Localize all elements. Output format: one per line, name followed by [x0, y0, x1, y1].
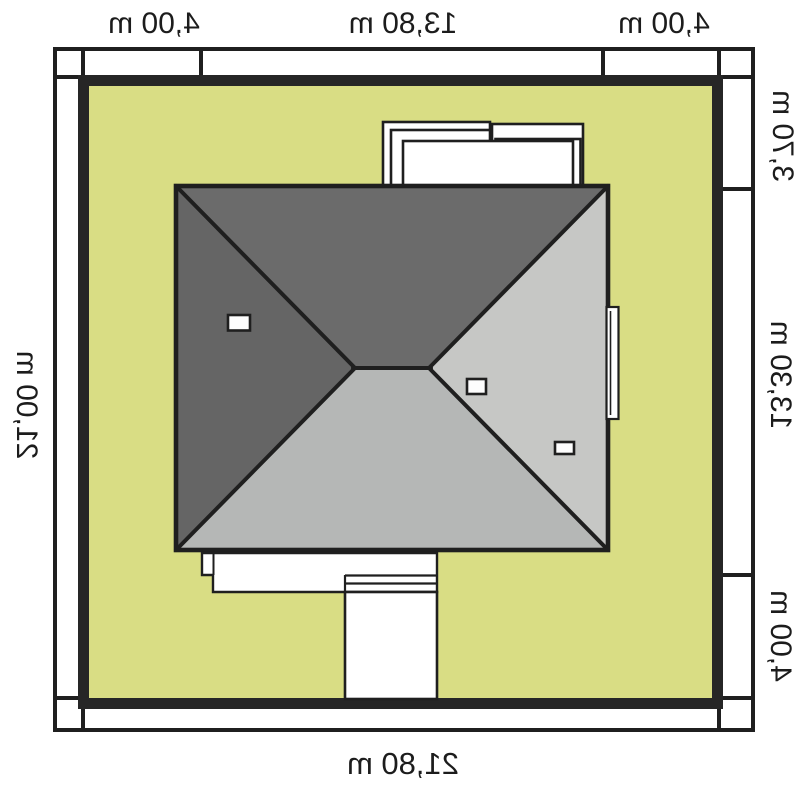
chimney-left: [228, 315, 250, 331]
dim-right-middle: 13,30 m: [762, 290, 798, 460]
dim-top-right: 4,00 m: [599, 6, 729, 42]
dim-top-left: 4,00 m: [89, 6, 219, 42]
chimney-right: [555, 442, 574, 454]
house-graphics: [0, 0, 800, 787]
dim-right-top: 3,70 m: [764, 71, 800, 201]
site-plan-canvas: 4,00 m 13,80 m 4,00 m 21,80 m 21,00 m 3,…: [0, 0, 800, 787]
right-opening-outer: [607, 307, 619, 419]
dim-right-bottom: 4,00 m: [762, 571, 798, 701]
dim-top-middle: 13,80 m: [328, 6, 478, 42]
entry-path: [345, 592, 437, 699]
terrace-bottom: [202, 553, 437, 699]
terrace-top-floor: [403, 141, 573, 190]
chimney-center: [467, 379, 486, 394]
dim-bottom: 21,80 m: [318, 746, 488, 782]
terrace-top: [383, 122, 583, 190]
right-wall-opening: [607, 307, 619, 419]
dim-left: 21,00 m: [8, 320, 44, 490]
terrace-bottom-slab: [202, 553, 437, 592]
